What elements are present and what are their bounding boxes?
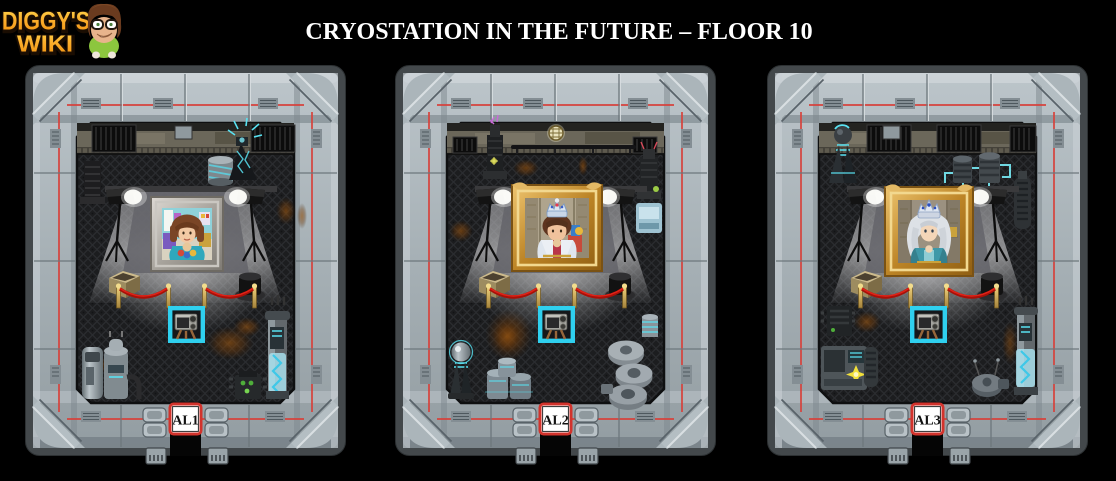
svg-text:AL2: AL2 (542, 414, 568, 429)
svg-text:AL3: AL3 (914, 414, 940, 429)
svg-text:WIKI: WIKI (17, 31, 73, 57)
svg-text:CRYOSTATION IN THE FUTURE – FL: CRYOSTATION IN THE FUTURE – FLOOR 10 (305, 19, 812, 45)
svg-text:AL1: AL1 (172, 414, 198, 429)
